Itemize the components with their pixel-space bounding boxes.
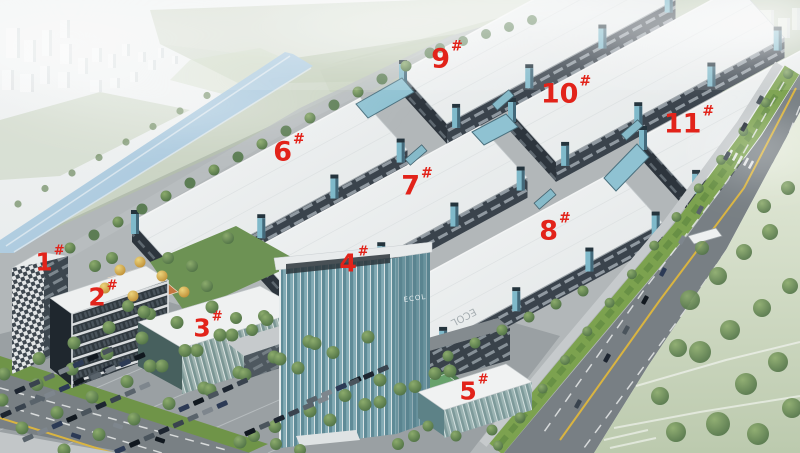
building-label-4: 4# [339, 251, 368, 276]
building-label-9: 9# [431, 46, 463, 73]
aerial-rendering: ECOL ECOL [0, 0, 800, 453]
campus-illustration: ECOL ECOL [0, 0, 800, 453]
building-label-2: 2# [88, 285, 117, 310]
building-label-10: 10# [541, 81, 591, 108]
building-label-3: 3# [193, 316, 222, 341]
building-label-6: 6# [273, 139, 305, 166]
building-label-1: 1# [35, 250, 64, 275]
building-label-8: 8# [539, 218, 571, 245]
building-label-7: 7# [401, 173, 433, 200]
building-label-5: 5# [459, 379, 488, 404]
top-haze [0, 0, 800, 90]
building-label-11: 11# [664, 111, 714, 138]
